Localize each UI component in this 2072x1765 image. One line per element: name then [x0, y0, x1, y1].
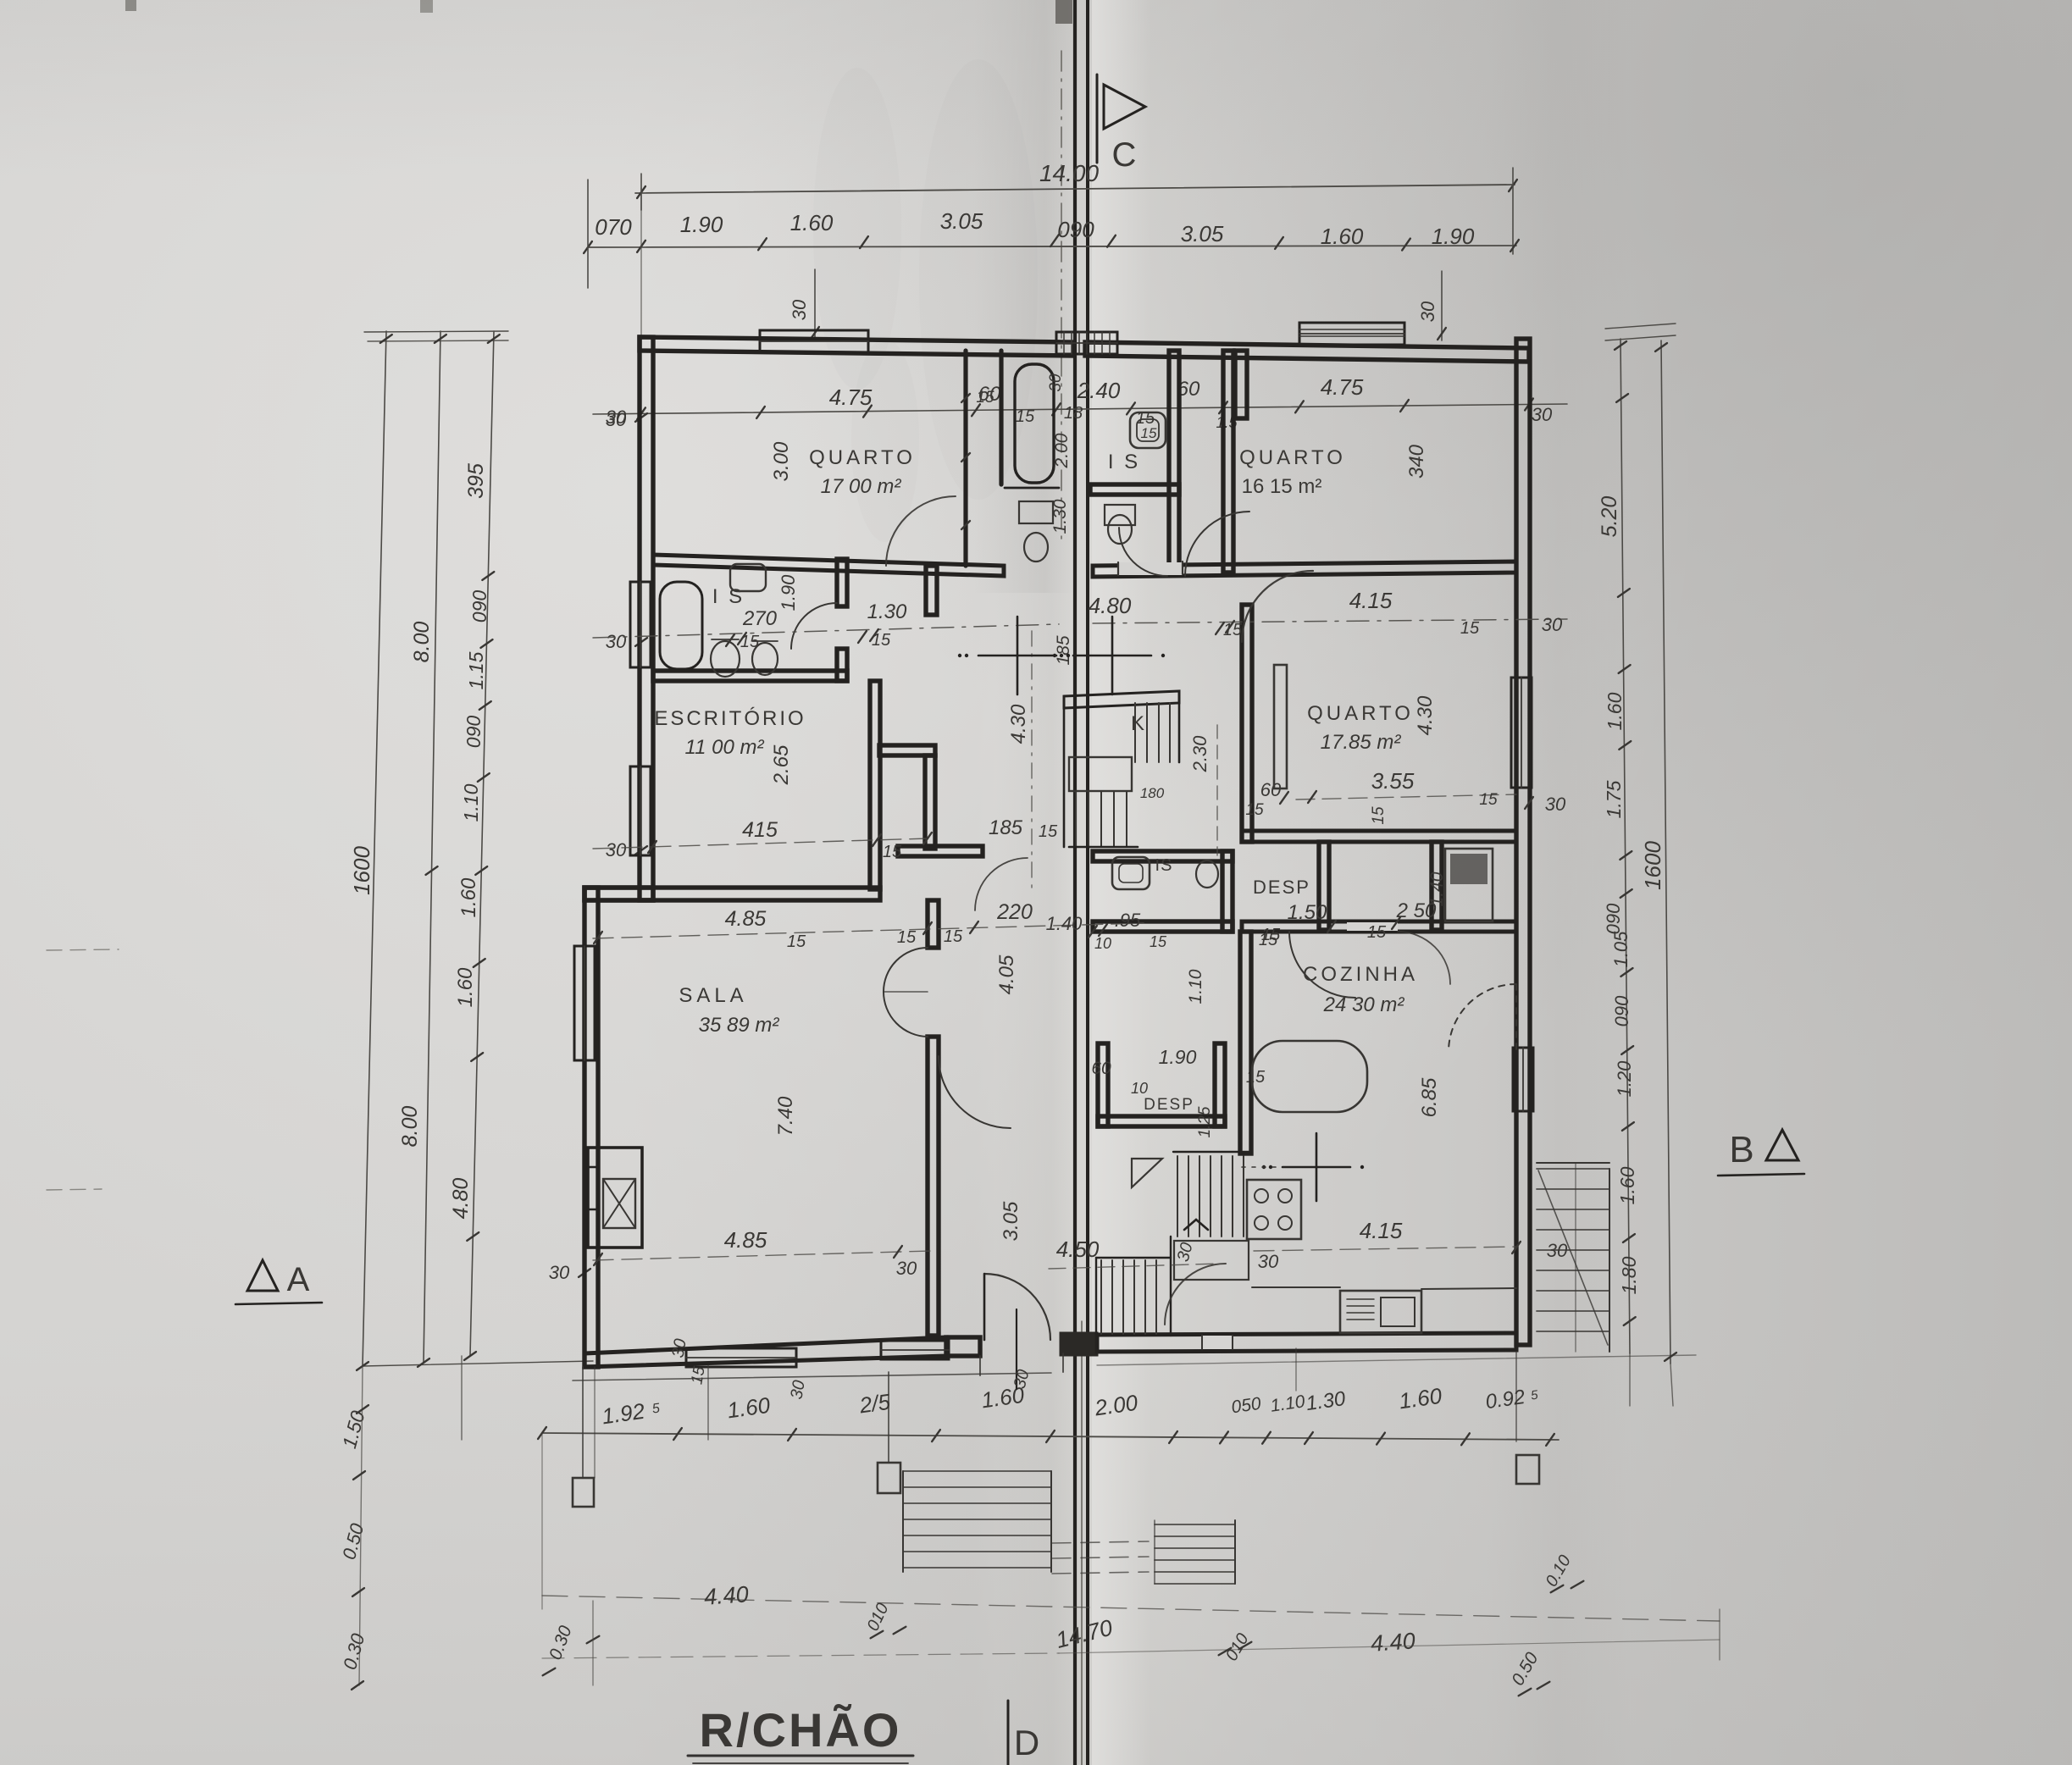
svg-text:1.90: 1.90 — [778, 574, 799, 611]
svg-text:15: 15 — [688, 1364, 708, 1386]
svg-text:1600: 1600 — [1640, 841, 1665, 890]
svg-text:1.30: 1.30 — [867, 600, 907, 623]
svg-text:050: 050 — [1230, 1394, 1262, 1418]
svg-text:4.40: 4.40 — [703, 1581, 750, 1610]
svg-text:16 15 m²: 16 15 m² — [1242, 475, 1322, 498]
svg-text:.95: .95 — [1115, 910, 1141, 931]
svg-text:1.60: 1.60 — [457, 877, 480, 917]
svg-text:35 89 m²: 35 89 m² — [699, 1014, 780, 1037]
svg-text:5.20: 5.20 — [1598, 496, 1621, 538]
svg-text:30: 30 — [787, 1379, 809, 1401]
svg-text:1.60: 1.60 — [1616, 1166, 1638, 1204]
svg-text:15: 15 — [1479, 791, 1498, 809]
svg-text:I S: I S — [1108, 451, 1140, 473]
svg-text:090: 090 — [1057, 217, 1094, 242]
svg-text:10: 10 — [1094, 935, 1111, 952]
svg-text:2 50: 2 50 — [1396, 899, 1437, 922]
svg-text:60: 60 — [1260, 779, 1282, 800]
svg-text:ESCRITÓRIO: ESCRITÓRIO — [654, 707, 806, 730]
svg-text:30: 30 — [606, 839, 627, 860]
svg-text:30: 30 — [1545, 794, 1566, 815]
svg-text:D: D — [1014, 1723, 1039, 1762]
svg-text:30: 30 — [1417, 301, 1438, 322]
svg-text:4.85: 4.85 — [724, 1227, 767, 1253]
svg-text:DESP: DESP — [1253, 877, 1310, 898]
svg-text:18: 18 — [1064, 404, 1083, 423]
svg-text:1.05: 1.05 — [1610, 931, 1632, 968]
svg-text:K: K — [1131, 712, 1144, 735]
svg-text:15: 15 — [787, 932, 806, 951]
svg-text:1.90: 1.90 — [680, 212, 723, 237]
svg-text:2.40: 2.40 — [1077, 378, 1121, 403]
svg-text:15: 15 — [1367, 923, 1387, 942]
svg-text:I S: I S — [712, 585, 745, 608]
svg-text:R/CHÃO: R/CHÃO — [700, 1703, 902, 1757]
svg-text:3.05: 3.05 — [940, 208, 983, 234]
svg-text:1600: 1600 — [349, 846, 374, 895]
svg-text:15: 15 — [1245, 801, 1264, 819]
svg-text:15: 15 — [1261, 926, 1281, 944]
svg-text:7.40: 7.40 — [774, 1096, 797, 1136]
svg-text:30: 30 — [1532, 404, 1553, 425]
svg-text:1.60: 1.60 — [1604, 692, 1626, 730]
svg-text:1.10: 1.10 — [460, 783, 482, 822]
svg-text:30: 30 — [1542, 614, 1563, 635]
svg-text:30: 30 — [1047, 373, 1065, 392]
svg-text:1.75: 1.75 — [1603, 780, 1625, 818]
svg-text:185: 185 — [989, 816, 1023, 839]
svg-text:1.30: 1.30 — [1050, 499, 1070, 534]
svg-text:270: 270 — [742, 607, 778, 630]
svg-text:C: C — [1112, 136, 1137, 174]
svg-text:30: 30 — [606, 631, 627, 652]
svg-text:30: 30 — [896, 1258, 917, 1279]
svg-text:185: 185 — [1054, 635, 1073, 665]
svg-text:30: 30 — [606, 407, 627, 428]
svg-text:30: 30 — [789, 299, 810, 320]
svg-text:15: 15 — [944, 927, 963, 946]
svg-text:15: 15 — [1150, 933, 1167, 950]
svg-text:3.05: 3.05 — [1000, 1201, 1022, 1241]
svg-text:2.30: 2.30 — [1189, 735, 1211, 773]
svg-text:30: 30 — [549, 1262, 570, 1283]
svg-text:QUARTO: QUARTO — [809, 446, 916, 469]
svg-text:1.60: 1.60 — [790, 210, 834, 235]
svg-text:1.90: 1.90 — [1159, 1046, 1197, 1068]
svg-text:1.40: 1.40 — [1046, 913, 1083, 934]
svg-text:4.40: 4.40 — [1370, 1628, 1416, 1657]
svg-text:180: 180 — [1140, 785, 1165, 801]
svg-text:070: 070 — [595, 214, 632, 240]
svg-text:1.60: 1.60 — [454, 967, 477, 1007]
svg-text:17.85 m²: 17.85 m² — [1321, 731, 1402, 754]
svg-text:4.75: 4.75 — [1321, 374, 1364, 400]
svg-text:4.75: 4.75 — [829, 385, 873, 410]
svg-text:220: 220 — [996, 900, 1033, 924]
svg-text:1.25: 1.25 — [1196, 1106, 1214, 1137]
svg-text:B: B — [1729, 1129, 1753, 1170]
svg-text:QUARTO: QUARTO — [1239, 446, 1346, 469]
svg-text:COZINHA: COZINHA — [1303, 963, 1418, 986]
svg-text:8.00: 8.00 — [398, 1106, 422, 1148]
svg-text:17 00 m²: 17 00 m² — [821, 475, 902, 498]
svg-text:6.85: 6.85 — [1418, 1077, 1441, 1117]
svg-text:1.15: 1.15 — [465, 651, 487, 689]
svg-text:3.55: 3.55 — [1371, 768, 1415, 794]
svg-text:8.00: 8.00 — [410, 622, 434, 663]
svg-text:4.30: 4.30 — [1007, 704, 1030, 744]
svg-text:4.85: 4.85 — [725, 907, 767, 931]
svg-text:15: 15 — [1039, 822, 1058, 841]
svg-text:4.80: 4.80 — [1089, 593, 1132, 618]
svg-text:15: 15 — [1141, 425, 1157, 441]
svg-text:15: 15 — [897, 928, 917, 947]
svg-text:3.00: 3.00 — [770, 441, 793, 481]
svg-text:3.05: 3.05 — [1181, 221, 1224, 246]
svg-text:4.05: 4.05 — [995, 954, 1018, 994]
svg-text:4.80: 4.80 — [449, 1178, 473, 1220]
svg-text:1.10: 1.10 — [1186, 969, 1205, 1004]
svg-text:IS: IS — [1155, 856, 1173, 875]
svg-text:30: 30 — [1258, 1251, 1279, 1272]
svg-text:2.65: 2.65 — [770, 744, 793, 785]
svg-text:14.00: 14.00 — [1039, 160, 1099, 186]
svg-text:395: 395 — [464, 463, 488, 499]
svg-text:4.30: 4.30 — [1414, 695, 1437, 735]
svg-text:30: 30 — [668, 1337, 690, 1359]
svg-text:1.80: 1.80 — [1618, 1256, 1640, 1294]
svg-text:090: 090 — [1611, 995, 1632, 1026]
svg-text:15: 15 — [976, 389, 994, 407]
svg-text:1.50: 1.50 — [1288, 901, 1327, 924]
svg-text:415: 415 — [742, 818, 778, 842]
svg-text:15: 15 — [1460, 619, 1480, 638]
svg-text:4.50: 4.50 — [1056, 1237, 1100, 1262]
svg-text:090: 090 — [468, 590, 490, 623]
svg-text:15: 15 — [883, 843, 902, 861]
svg-text:QUARTO: QUARTO — [1307, 702, 1414, 725]
svg-text:1.90: 1.90 — [1432, 224, 1475, 249]
svg-text:A: A — [287, 1261, 310, 1298]
svg-text:1.20: 1.20 — [1614, 1060, 1635, 1098]
svg-text:10: 10 — [1131, 1080, 1148, 1097]
svg-text:24 30 m²: 24 30 m² — [1323, 993, 1405, 1016]
svg-text:340: 340 — [1405, 444, 1428, 479]
svg-text:DESP: DESP — [1144, 1096, 1194, 1114]
svg-text:SALA: SALA — [679, 984, 747, 1007]
svg-text:15: 15 — [1370, 806, 1388, 825]
svg-text:4.15: 4.15 — [1349, 588, 1393, 613]
svg-text:2/5: 2/5 — [857, 1389, 892, 1419]
svg-text:15: 15 — [1016, 407, 1035, 426]
svg-text:30: 30 — [1547, 1240, 1568, 1261]
svg-text:4.15: 4.15 — [1360, 1218, 1403, 1243]
svg-text:090: 090 — [1603, 903, 1624, 934]
svg-text:60: 60 — [1091, 1059, 1111, 1078]
svg-text:090: 090 — [463, 716, 485, 749]
svg-text:1.60: 1.60 — [1321, 224, 1364, 249]
svg-text:11 00 m²: 11 00 m² — [685, 736, 765, 759]
